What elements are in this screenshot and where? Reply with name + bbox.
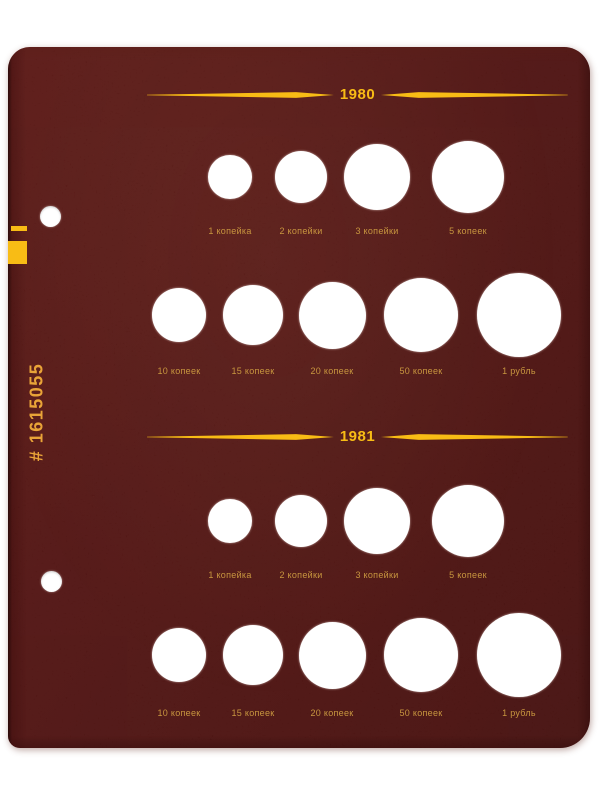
coin-slot-hole (299, 282, 366, 349)
coin-slot-label: 20 копеек (310, 366, 353, 376)
year-header-1981: 1981 (147, 428, 568, 445)
coin-slot: 1 рубль (474, 272, 564, 376)
coin-slot-hole (384, 278, 458, 352)
spine-catalog-number: # 1615055 (27, 363, 48, 462)
coin-slot: 50 копеек (376, 612, 466, 718)
coin-slot: 3 копейки (332, 484, 422, 580)
year-divider-line-left (147, 90, 334, 100)
coin-slot-label: 15 копеек (231, 708, 274, 718)
coin-slot-hole (477, 273, 561, 357)
year-heading: 1981 (334, 428, 381, 445)
coin-slot-hole (432, 141, 504, 213)
coin-slot-label: 15 копеек (231, 366, 274, 376)
coin-slot: 1 рубль (474, 612, 564, 718)
coin-slot-hole (275, 495, 327, 547)
coin-slot-label: 2 копейки (279, 226, 322, 236)
coin-slot-label: 50 копеек (399, 708, 442, 718)
coin-slot-hole (432, 485, 504, 557)
coin-slot: 5 копеек (423, 484, 513, 580)
year-divider-line-right (381, 90, 568, 100)
coin-slot-label: 3 копейки (355, 226, 398, 236)
coin-slot-hole (344, 488, 410, 554)
coin-slot-label: 10 копеек (157, 708, 200, 718)
year-divider-line-left (147, 432, 334, 442)
coin-slot-hole (275, 151, 327, 203)
coin-slot: 50 копеек (376, 272, 466, 376)
album-page: # 1615055 1980 1 копейка 2 копейки 3 коп… (8, 47, 590, 748)
spine-index-line (11, 226, 27, 231)
coin-slot-label: 3 копейки (355, 570, 398, 580)
coin-slot-label: 50 копеек (399, 366, 442, 376)
coin-slot-hole (152, 288, 206, 342)
year-divider-line-right (381, 432, 568, 442)
coin-slot-label: 20 копеек (310, 708, 353, 718)
coin-slot-hole (223, 625, 283, 685)
coin-slot: 5 копеек (423, 140, 513, 236)
coin-slot-label: 2 копейки (279, 570, 322, 580)
coin-slot: 15 копеек (208, 272, 298, 376)
coin-slot: 15 копеек (208, 612, 298, 718)
coin-slot: 20 копеек (287, 612, 377, 718)
binder-hole-top (40, 206, 61, 227)
coin-slot-label: 1 копейка (208, 570, 251, 580)
coin-slot-hole (384, 618, 458, 692)
coin-slot-hole (152, 628, 206, 682)
coin-slot: 3 копейки (332, 140, 422, 236)
coin-slot-hole (299, 622, 366, 689)
coin-slot-hole (344, 144, 410, 210)
coin-slot: 20 копеек (287, 272, 377, 376)
coin-slot-label: 5 копеек (449, 226, 487, 236)
binder-hole-bottom (41, 571, 62, 592)
coin-slot-label: 1 рубль (502, 708, 536, 718)
photo-background: # 1615055 1980 1 копейка 2 копейки 3 коп… (0, 0, 600, 800)
coin-slot-hole (223, 285, 283, 345)
coin-slot-hole (208, 155, 252, 199)
year-header-1980: 1980 (147, 86, 568, 103)
coin-slot-label: 5 копеек (449, 570, 487, 580)
year-heading: 1980 (334, 86, 381, 103)
coin-slot-label: 1 рубль (502, 366, 536, 376)
coin-slot-label: 1 копейка (208, 226, 251, 236)
coin-slot-hole (208, 499, 252, 543)
coin-slot-label: 10 копеек (157, 366, 200, 376)
spine-index-tab (8, 241, 27, 264)
coin-slot-hole (477, 613, 561, 697)
